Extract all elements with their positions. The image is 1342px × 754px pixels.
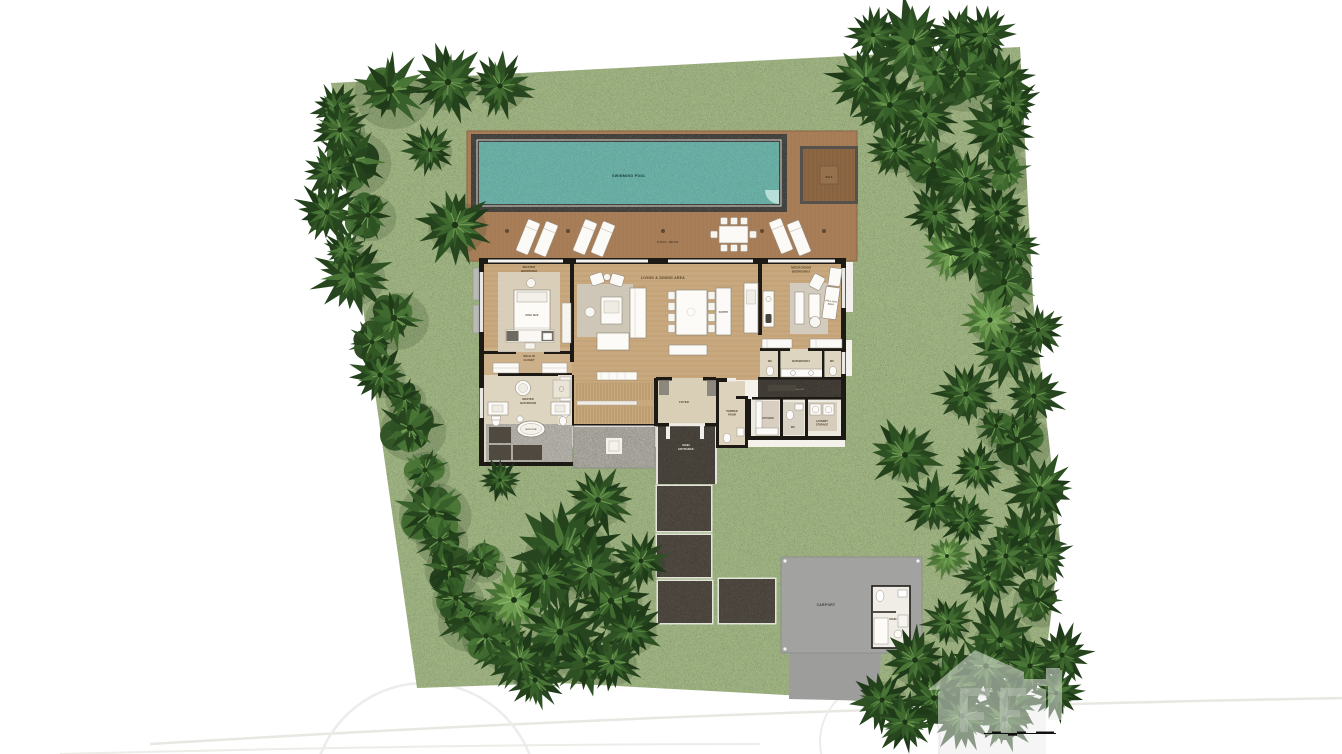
svg-text:MAID: MAID (889, 617, 896, 621)
svg-text:LIVING & DINING AREA: LIVING & DINING AREA (641, 276, 685, 280)
svg-text:BEDROOM: BEDROOM (521, 269, 537, 273)
svg-text:BATHROOM: BATHROOM (520, 401, 536, 405)
svg-text:STORAGE: STORAGE (816, 424, 829, 427)
svg-text:WC: WC (768, 360, 772, 363)
svg-text:KITCHEN: KITCHEN (762, 417, 773, 420)
svg-text:BEDROOM 2: BEDROOM 2 (792, 269, 811, 273)
svg-text:HALLWAY: HALLWAY (795, 388, 805, 391)
svg-text:SWIMMING POOL: SWIMMING POOL (612, 174, 646, 178)
svg-text:SALA: SALA (825, 175, 832, 179)
svg-text:WC: WC (830, 360, 834, 363)
svg-text:FOYER: FOYER (679, 400, 689, 404)
svg-text:ENTRANCE: ENTRANCE (678, 447, 694, 451)
svg-text:MASTER: MASTER (522, 397, 533, 401)
svg-text:BATHROOM 2: BATHROOM 2 (792, 359, 810, 363)
svg-text:WALK-IN: WALK-IN (523, 354, 535, 358)
svg-text:PANTRY: PANTRY (719, 311, 729, 314)
svg-text:KING SIZE: KING SIZE (526, 313, 539, 317)
svg-text:POOL DECK: POOL DECK (657, 240, 679, 244)
svg-text:CARPORT: CARPORT (817, 603, 836, 607)
svg-text:WC: WC (791, 426, 795, 429)
svg-text:ROOM: ROOM (728, 414, 736, 417)
svg-text:CLOSET: CLOSET (524, 358, 535, 362)
svg-text:BATH TUB: BATH TUB (525, 428, 536, 431)
svg-text:0: 0 (985, 735, 987, 739)
